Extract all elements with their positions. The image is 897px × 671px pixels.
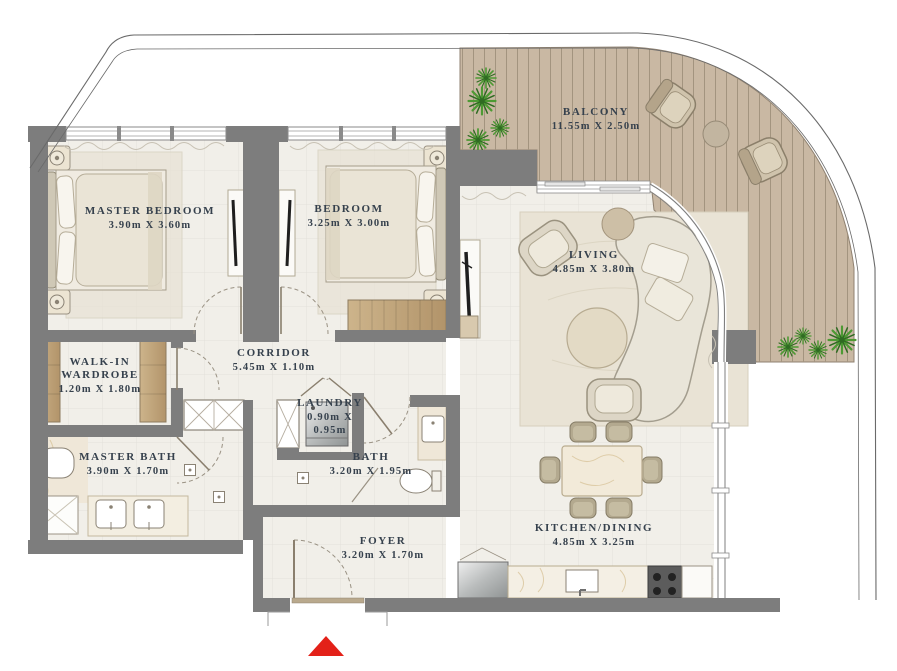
coffee-table — [567, 308, 627, 368]
bed-headboard — [436, 168, 446, 280]
fridge — [458, 562, 508, 598]
floor-plan: MASTER BEDROOM3.90m X 3.60mBEDROOM3.25m … — [0, 0, 897, 671]
dining-table — [562, 446, 642, 496]
armchair — [587, 379, 641, 421]
kitchen-sink — [566, 570, 598, 592]
console-table — [460, 316, 478, 338]
cabinet — [682, 566, 712, 598]
balcony-table — [703, 121, 729, 147]
side-table — [602, 208, 634, 240]
floor-plan-graphic — [0, 0, 897, 671]
laundry-appliance — [306, 402, 348, 446]
bench — [348, 300, 446, 332]
toilet — [400, 469, 432, 493]
entrance-triangle — [308, 636, 344, 656]
entrance-sill — [292, 598, 364, 603]
sink — [422, 416, 444, 442]
stove — [648, 566, 682, 598]
